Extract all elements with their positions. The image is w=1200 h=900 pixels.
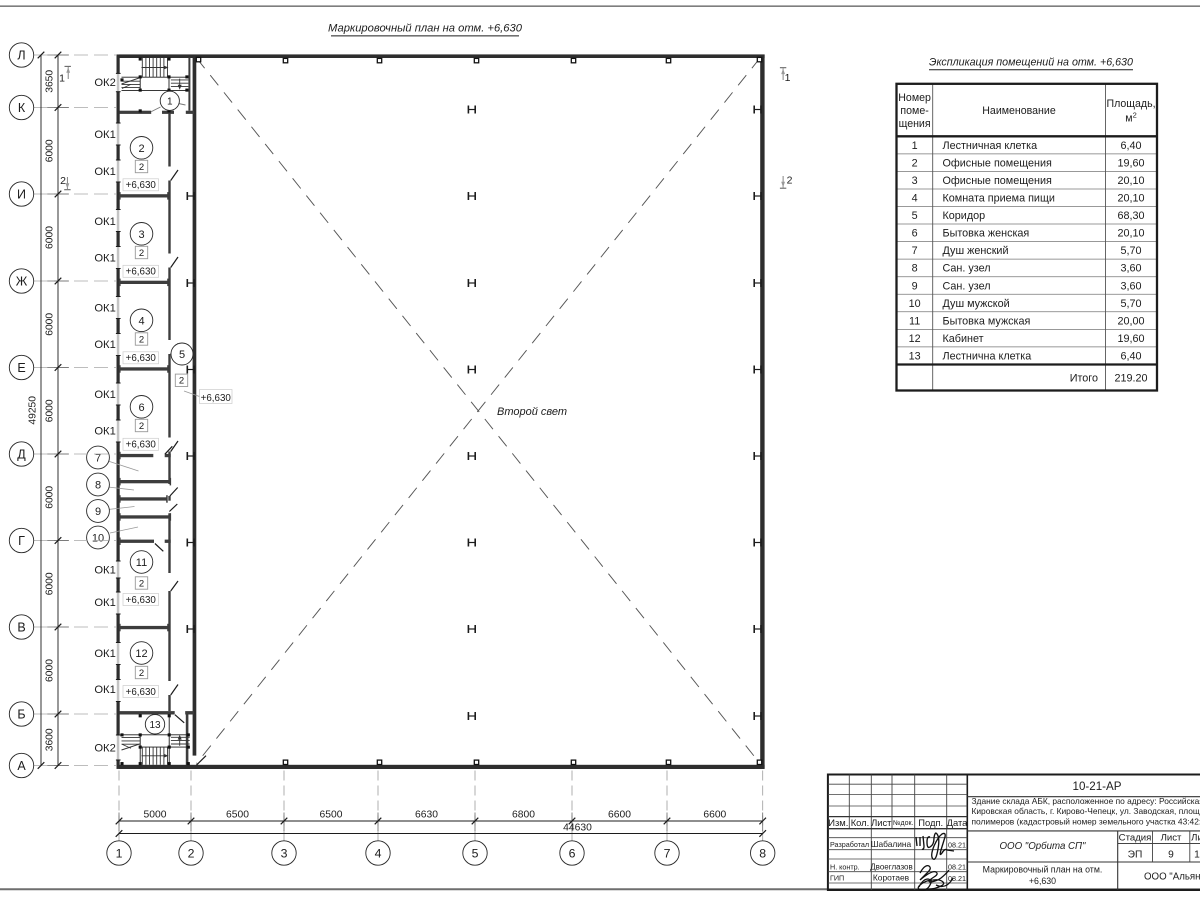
svg-text:4: 4 xyxy=(912,193,918,205)
svg-text:3600: 3600 xyxy=(45,728,56,751)
svg-text:Бытовка мужская: Бытовка мужская xyxy=(943,315,1031,327)
svg-text:Итого: Итого xyxy=(1070,373,1098,385)
svg-text:ОК1: ОК1 xyxy=(94,564,115,576)
svg-text:5,70: 5,70 xyxy=(1120,298,1141,310)
svg-text:Кол.: Кол. xyxy=(851,817,870,828)
svg-text:Лестничная клетка: Лестничная клетка xyxy=(943,140,1038,152)
svg-text:1: 1 xyxy=(59,73,65,85)
svg-text:Площадь,: Площадь, xyxy=(1106,98,1155,110)
svg-text:Подп.: Подп. xyxy=(918,817,943,828)
svg-text:68,30: 68,30 xyxy=(1117,210,1144,222)
svg-text:6000: 6000 xyxy=(45,313,56,336)
svg-text:6600: 6600 xyxy=(703,810,726,821)
svg-text:6000: 6000 xyxy=(45,486,56,509)
svg-text:2: 2 xyxy=(139,334,144,345)
svg-text:ГИП: ГИП xyxy=(830,874,844,883)
svg-text:2: 2 xyxy=(138,143,144,155)
svg-text:ОК1: ОК1 xyxy=(94,389,115,401)
svg-text:Экспликация помещений на отм.: Экспликация помещений на отм. +6,630 xyxy=(929,57,1133,69)
svg-text:10: 10 xyxy=(909,298,921,310)
svg-text:3650: 3650 xyxy=(45,70,56,93)
svg-text:+6,630: +6,630 xyxy=(126,267,157,278)
svg-text:ООО "Орбита СП": ООО "Орбита СП" xyxy=(1000,841,1087,852)
svg-text:08.21: 08.21 xyxy=(948,840,966,849)
svg-text:7: 7 xyxy=(912,245,918,257)
svg-text:9: 9 xyxy=(95,506,101,518)
svg-text:6500: 6500 xyxy=(320,810,343,821)
svg-text:Ли: Ли xyxy=(1191,833,1200,844)
svg-text:+6,630: +6,630 xyxy=(201,393,232,404)
svg-text:3: 3 xyxy=(912,175,918,187)
svg-text:ООО "Альянс: ООО "Альянс xyxy=(1144,872,1200,883)
svg-text:+6,630: +6,630 xyxy=(126,180,157,191)
svg-text:6800: 6800 xyxy=(512,810,535,821)
svg-text:2: 2 xyxy=(787,175,793,187)
svg-text:ОК1: ОК1 xyxy=(94,252,115,264)
svg-text:Б: Б xyxy=(17,708,25,722)
svg-text:Лист: Лист xyxy=(1161,833,1182,844)
svg-text:2: 2 xyxy=(179,376,184,387)
svg-text:+6,630: +6,630 xyxy=(126,595,157,606)
svg-text:3: 3 xyxy=(281,846,288,860)
svg-text:6000: 6000 xyxy=(45,139,56,162)
svg-text:1: 1 xyxy=(1194,850,1200,861)
svg-text:44630: 44630 xyxy=(563,823,592,834)
svg-text:ОК1: ОК1 xyxy=(94,684,115,696)
svg-text:Офисные помещения: Офисные помещения xyxy=(943,157,1052,169)
svg-text:6: 6 xyxy=(912,228,918,240)
svg-text:+6,630: +6,630 xyxy=(126,687,157,698)
svg-text:11: 11 xyxy=(909,315,920,327)
svg-text:6: 6 xyxy=(569,846,576,860)
svg-text:2: 2 xyxy=(60,175,66,187)
svg-text:К: К xyxy=(18,101,26,115)
svg-text:ОК1: ОК1 xyxy=(94,302,115,314)
svg-text:И: И xyxy=(17,188,26,202)
svg-text:№док.: №док. xyxy=(893,820,914,827)
svg-text:6000: 6000 xyxy=(45,659,56,682)
svg-text:ОК1: ОК1 xyxy=(94,339,115,351)
svg-text:12: 12 xyxy=(909,333,921,345)
svg-text:ОК1: ОК1 xyxy=(94,216,115,228)
svg-text:+6,630: +6,630 xyxy=(1029,876,1056,886)
svg-text:Лист: Лист xyxy=(871,817,892,828)
svg-text:Офисные помещения: Офисные помещения xyxy=(943,175,1052,187)
svg-text:Кабинет: Кабинет xyxy=(943,333,984,345)
svg-text:ОК1: ОК1 xyxy=(94,129,115,141)
svg-text:В: В xyxy=(17,621,25,635)
svg-text:полимеров (кадастровый номер з: полимеров (кадастровый номер земельного … xyxy=(972,816,1200,826)
svg-text:Душ женский: Душ женский xyxy=(943,245,1009,257)
svg-text:Сан. узел: Сан. узел xyxy=(943,280,991,292)
svg-text:5000: 5000 xyxy=(144,810,167,821)
svg-text:1: 1 xyxy=(785,72,791,84)
svg-text:Кировская область, г. Кирово-Ч: Кировская область, г. Кирово-Чепецк, ул.… xyxy=(972,806,1200,816)
svg-text:5: 5 xyxy=(179,349,185,361)
svg-text:Коротаев: Коротаев xyxy=(873,873,910,883)
svg-text:Здание склада АБК, расположенн: Здание склада АБК, расположенное по адре… xyxy=(972,796,1200,806)
svg-text:ОК1: ОК1 xyxy=(94,597,115,609)
svg-text:2: 2 xyxy=(139,248,144,259)
svg-text:Душ мужской: Душ мужской xyxy=(943,298,1010,310)
svg-text:ОК1: ОК1 xyxy=(94,425,115,437)
svg-text:49250: 49250 xyxy=(28,396,39,425)
svg-text:20,00: 20,00 xyxy=(1117,315,1144,327)
svg-text:щения: щения xyxy=(899,118,931,130)
svg-text:Д: Д xyxy=(17,448,26,462)
svg-text:Г: Г xyxy=(18,534,25,548)
svg-text:+6,630: +6,630 xyxy=(126,353,157,364)
svg-text:9: 9 xyxy=(1168,850,1174,861)
svg-text:13: 13 xyxy=(149,720,161,731)
svg-text:3,60: 3,60 xyxy=(1120,280,1141,292)
svg-text:Номер: Номер xyxy=(898,92,931,104)
svg-text:20,10: 20,10 xyxy=(1117,193,1144,205)
svg-text:6,40: 6,40 xyxy=(1120,140,1141,152)
svg-text:1: 1 xyxy=(116,846,123,860)
svg-text:1: 1 xyxy=(912,140,918,152)
svg-text:Изм.: Изм. xyxy=(828,817,848,828)
svg-text:3,60: 3,60 xyxy=(1120,263,1141,275)
svg-text:10: 10 xyxy=(92,532,104,544)
svg-text:2: 2 xyxy=(139,162,144,173)
svg-text:Л: Л xyxy=(17,49,25,63)
svg-text:6500: 6500 xyxy=(226,810,249,821)
svg-text:ЭП: ЭП xyxy=(1128,850,1143,861)
svg-text:Е: Е xyxy=(17,361,25,375)
svg-text:2: 2 xyxy=(912,157,918,169)
svg-text:6000: 6000 xyxy=(45,226,56,249)
svg-text:Разработал: Разработал xyxy=(830,840,869,849)
svg-text:8: 8 xyxy=(95,479,101,491)
svg-text:3: 3 xyxy=(138,229,144,241)
svg-text:+6,630: +6,630 xyxy=(126,440,157,451)
svg-text:Стадия: Стадия xyxy=(1119,833,1152,844)
svg-text:Дата: Дата xyxy=(947,817,969,828)
svg-text:ОК1: ОК1 xyxy=(94,648,115,660)
svg-text:Лестнична клетка: Лестнична клетка xyxy=(943,350,1032,362)
svg-text:ОК2: ОК2 xyxy=(94,77,115,89)
svg-text:6630: 6630 xyxy=(415,810,438,821)
svg-text:10-21-АР: 10-21-АР xyxy=(1073,780,1122,793)
svg-text:20,10: 20,10 xyxy=(1117,175,1144,187)
svg-text:Маркировочный план на отм. +6,: Маркировочный план на отм. +6,630 xyxy=(328,23,523,35)
svg-text:Бытовка женская: Бытовка женская xyxy=(943,228,1030,240)
svg-text:6000: 6000 xyxy=(45,572,56,595)
svg-text:219.20: 219.20 xyxy=(1114,373,1147,385)
svg-text:ОК2: ОК2 xyxy=(94,743,115,755)
svg-text:19,60: 19,60 xyxy=(1117,333,1144,345)
svg-text:7: 7 xyxy=(664,846,671,860)
svg-text:11: 11 xyxy=(136,557,147,569)
svg-text:8: 8 xyxy=(912,263,918,275)
svg-text:12: 12 xyxy=(135,648,147,660)
svg-text:5: 5 xyxy=(912,210,918,222)
svg-text:2: 2 xyxy=(139,578,144,589)
svg-text:Ж: Ж xyxy=(16,275,28,289)
svg-text:5: 5 xyxy=(472,846,479,860)
svg-text:6,40: 6,40 xyxy=(1120,350,1141,362)
svg-text:2: 2 xyxy=(139,421,144,432)
svg-text:Н. контр.: Н. контр. xyxy=(830,862,860,871)
svg-text:Комната приема пищи: Комната приема пищи xyxy=(943,193,1055,205)
svg-text:Шабалина: Шабалина xyxy=(871,839,912,849)
svg-text:5,70: 5,70 xyxy=(1120,245,1141,257)
svg-text:19,60: 19,60 xyxy=(1117,157,1144,169)
svg-text:Второй свет: Второй свет xyxy=(497,406,567,418)
svg-text:А: А xyxy=(17,759,26,773)
svg-text:6000: 6000 xyxy=(45,399,56,422)
svg-text:8: 8 xyxy=(759,846,766,860)
svg-text:ОК1: ОК1 xyxy=(94,166,115,178)
svg-text:08.21: 08.21 xyxy=(948,863,966,872)
svg-text:1: 1 xyxy=(167,96,173,107)
svg-text:4: 4 xyxy=(375,846,382,860)
svg-text:6600: 6600 xyxy=(608,810,631,821)
svg-text:9: 9 xyxy=(912,280,918,292)
svg-text:Маркировочный план на отм.: Маркировочный план на отм. xyxy=(983,864,1103,874)
svg-text:Двоеглазов: Двоеглазов xyxy=(870,862,913,871)
svg-text:поме-: поме- xyxy=(900,105,929,117)
svg-text:2: 2 xyxy=(188,846,195,860)
svg-text:4: 4 xyxy=(138,315,144,327)
svg-text:6: 6 xyxy=(138,402,144,414)
svg-text:Наименование: Наименование xyxy=(982,105,1056,117)
svg-text:Сан. узел: Сан. узел xyxy=(943,263,991,275)
svg-text:20,10: 20,10 xyxy=(1117,228,1144,240)
svg-text:2: 2 xyxy=(139,668,144,679)
svg-text:13: 13 xyxy=(909,350,921,362)
svg-text:Коридор: Коридор xyxy=(943,210,986,222)
